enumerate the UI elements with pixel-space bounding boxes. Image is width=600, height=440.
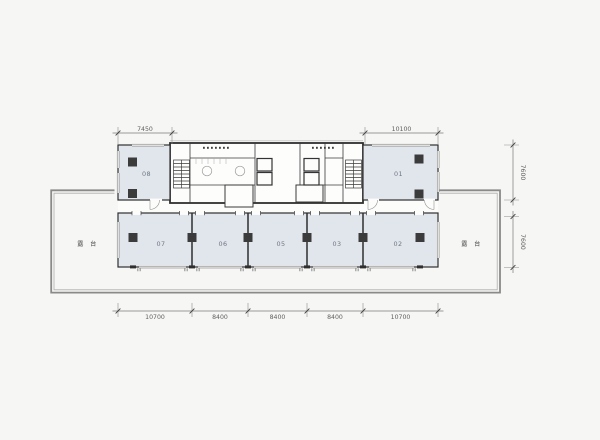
room-03-label: 03: [333, 240, 342, 248]
room-01-label: 01: [394, 170, 403, 178]
dim-bottom-1-label: 10700: [145, 314, 165, 321]
floor-plan-canvas: 08 01: [0, 0, 600, 440]
dim-right-upper-label: 7600: [519, 165, 526, 181]
terrace-label-right: 露 台: [461, 240, 483, 248]
room-08-label: 08: [142, 170, 151, 178]
dim-bottom-5-label: 10700: [391, 314, 411, 321]
column: [128, 189, 137, 198]
lower-block: 07 06 05 03 02: [117, 211, 440, 271]
room-08: 08: [117, 144, 170, 210]
floor-plan: 08 01: [0, 0, 600, 440]
column: [128, 158, 137, 167]
dim-bottom-2-label: 8400: [212, 314, 228, 321]
room-05-label: 05: [277, 240, 286, 248]
elevator-shaft: [257, 159, 272, 172]
room-07-label: 07: [157, 240, 166, 248]
door-opening: [150, 199, 162, 202]
dim-bottom-3-label: 8400: [270, 314, 286, 321]
room-06-label: 06: [219, 240, 228, 248]
column: [129, 233, 138, 242]
dim-right-lower-label: 7600: [519, 234, 526, 250]
elevator-shaft: [304, 173, 319, 186]
dim-bottom-4-label: 8400: [327, 314, 343, 321]
column: [303, 233, 312, 242]
column: [415, 155, 424, 164]
column: [359, 233, 368, 242]
elevator-shaft: [257, 173, 272, 186]
column: [188, 233, 197, 242]
door-opening: [424, 199, 435, 202]
core-service-room: [296, 185, 323, 202]
dim-top-left-label: 7450: [137, 126, 153, 133]
room-01: 01: [363, 144, 439, 210]
dim-top-right-label: 10100: [392, 126, 412, 133]
core: [170, 141, 363, 207]
column: [244, 233, 253, 242]
column: [416, 233, 425, 242]
elevator-shaft: [304, 159, 319, 172]
core-lobby-room: [225, 185, 253, 207]
room-02-label: 02: [394, 240, 403, 248]
column: [415, 190, 424, 199]
terrace-label-left: 露 台: [77, 240, 99, 248]
